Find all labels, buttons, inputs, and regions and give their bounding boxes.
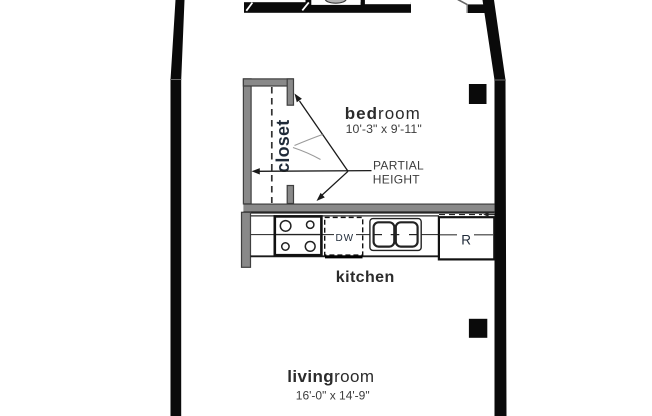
svg-text:16'-0" x 14'-9": 16'-0" x 14'-9" <box>296 388 370 402</box>
svg-text:HEIGHT: HEIGHT <box>373 172 421 186</box>
svg-text:10'-3" x 9'-11": 10'-3" x 9'-11" <box>346 122 422 136</box>
svg-text:kitchen: kitchen <box>336 269 395 286</box>
svg-text:PARTIAL: PARTIAL <box>373 159 424 173</box>
svg-text:bedroom: bedroom <box>345 104 421 123</box>
svg-text:DW: DW <box>336 233 354 244</box>
svg-text:closet: closet <box>273 120 293 173</box>
svg-text:R: R <box>461 232 471 247</box>
svg-text:livingroom: livingroom <box>287 367 374 386</box>
